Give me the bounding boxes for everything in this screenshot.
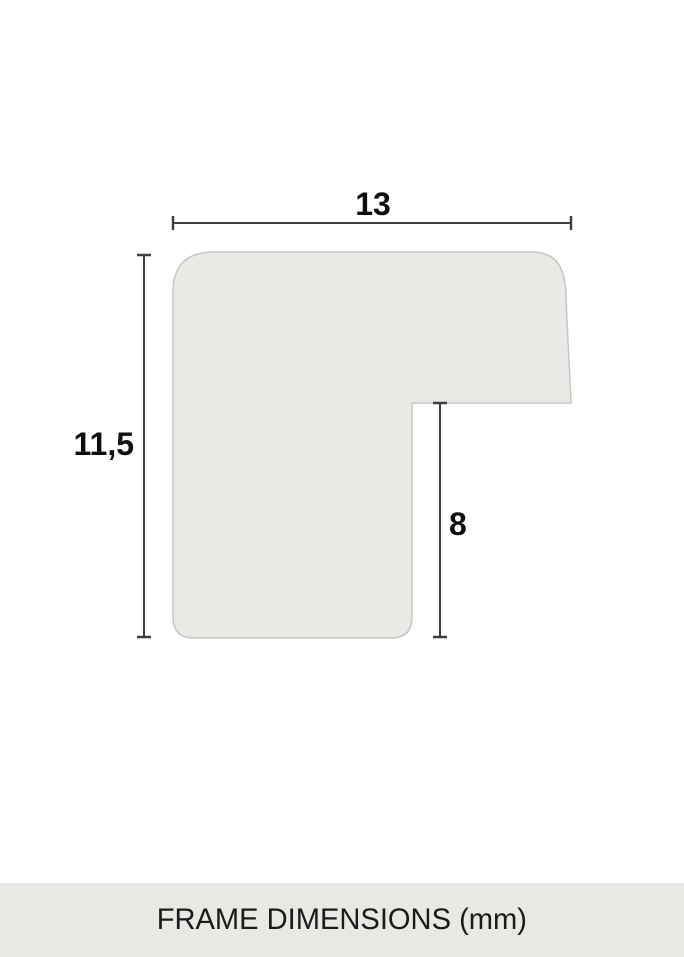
width-dimension: 13 xyxy=(173,186,571,230)
footer-caption: FRAME DIMENSIONS (mm) xyxy=(157,903,527,937)
rabbet-depth-dimension: 8 xyxy=(433,403,467,637)
frame-profile-diagram: 13 11,5 8 xyxy=(0,0,684,883)
height-dimension-label: 11,5 xyxy=(73,426,134,462)
frame-dimensions-page: 13 11,5 8 FRAME DIMENSIONS (mm) xyxy=(0,0,684,957)
profile-shape xyxy=(173,252,571,638)
rabbet-depth-dimension-label: 8 xyxy=(449,506,467,542)
height-dimension: 11,5 xyxy=(73,255,151,637)
width-dimension-label: 13 xyxy=(355,186,391,222)
footer-bar: FRAME DIMENSIONS (mm) xyxy=(0,883,684,957)
